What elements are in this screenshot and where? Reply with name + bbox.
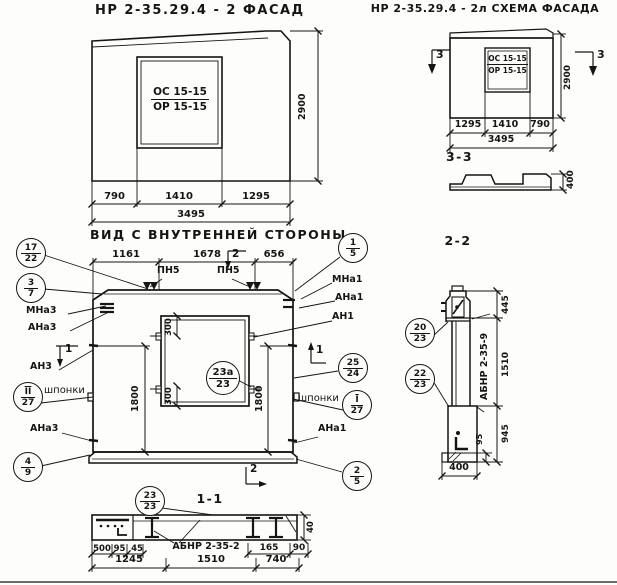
facade-title: НР 2-35.29.4 - 2 ФАСАД: [95, 4, 291, 18]
callout-23-23: 23 23: [135, 486, 165, 516]
section-mark-2-top: 2: [232, 249, 239, 260]
callout-II-27: II 27: [13, 382, 43, 412]
callout-top-number: 1: [346, 238, 360, 249]
inner-view-leaders: [41, 255, 343, 472]
callout-top-number: 23: [140, 491, 161, 502]
section-1-1-title: 1-1: [190, 492, 230, 505]
callout-2-5: 2 5: [342, 461, 372, 491]
callout-bottom-number: 27: [22, 398, 35, 408]
callout-top-number: 20: [410, 323, 431, 334]
callout-4-9: 4 9: [13, 452, 43, 482]
inner-dim-window-offset-top: 300: [164, 316, 174, 338]
facade-dim-right: 1295: [235, 192, 277, 203]
dim-95-lip: 95: [475, 430, 484, 448]
dim-45: 45: [128, 545, 146, 554]
dim-400: 400: [440, 463, 478, 473]
window-mark-bottom: ОР 15-15: [151, 101, 209, 113]
part-label-shponki-left: шпонки: [44, 386, 85, 397]
scheme-window-mark: ОС 15-15 ОР 15-15: [487, 54, 528, 75]
weld-mark-left: ПН5: [157, 266, 180, 276]
window-mark-top: ОС 15-15: [151, 86, 209, 100]
callout-bottom-number: 5: [350, 249, 356, 259]
scheme-title: НР 2-35.29.4 - 2л СХЕМА ФАСАДА: [356, 3, 614, 15]
callout-top-number: 2: [350, 466, 364, 477]
callout-bottom-number: 24: [347, 369, 360, 379]
facade-dim-total: 3495: [170, 210, 212, 221]
dim-90: 90: [287, 544, 311, 553]
beam-mark-2-2: АБНР 2-35-9: [479, 320, 490, 412]
inner-dim-top-right: 656: [257, 250, 291, 261]
facade-dim-left: 790: [96, 192, 133, 203]
part-label-ana3-bottom: АНа3: [30, 424, 58, 434]
callout-I-27: I 27: [342, 390, 372, 420]
dim-95: 95: [111, 545, 128, 554]
scheme-dim-middle: 1410: [489, 120, 521, 130]
callout-bottom-number: 23: [216, 379, 230, 390]
inner-dim-height-left: 1800: [130, 382, 141, 416]
callout-20-23: 20 23: [405, 318, 435, 348]
scheme-section-mark-right: 3: [597, 49, 605, 61]
facade-dim-middle: 1410: [158, 192, 200, 203]
inner-view-title: ВИД С ВНУТРЕННЕЙ СТОРОНЫ: [90, 228, 316, 241]
callout-bottom-number: 27: [351, 406, 364, 416]
scheme-dim-height: 2900: [563, 56, 573, 98]
part-label-ana1-bottom: АНа1: [318, 424, 346, 434]
callout-bottom-number: 23: [414, 334, 427, 344]
callout-top-number: 22: [410, 369, 431, 380]
section-mark-2-bottom: 2: [250, 464, 257, 475]
callout-bottom-number: 9: [25, 468, 31, 478]
part-label-shponki-right: шпонки: [298, 394, 339, 405]
section-2-2-linework: [433, 286, 503, 480]
beam-mark-1-1: АБНР 2-35-2: [163, 542, 249, 552]
dim-165: 165: [254, 544, 284, 553]
part-label-mna1: МНа1: [332, 275, 362, 285]
callout-23a-23: 23а 23: [206, 361, 240, 395]
callout-top-number: 25: [343, 358, 364, 369]
dim-1245: 1245: [105, 555, 153, 566]
inner-dim-height-right: 1800: [254, 382, 265, 416]
callout-top-number: 3: [24, 278, 38, 289]
section-mark-1-right: 1: [316, 345, 323, 356]
window-mark-bottom: ОР 15-15: [487, 66, 528, 75]
dim-945: 945: [501, 418, 511, 450]
inner-dim-top-middle: 1678: [186, 250, 228, 261]
section-3-3-title: 3-3: [432, 150, 487, 163]
callout-bottom-number: 22: [25, 254, 38, 264]
callout-top-number: 23а: [209, 367, 238, 379]
weld-mark-right: ПН5: [217, 266, 240, 276]
section-3-3-linework: [450, 174, 567, 190]
dim-740: 740: [254, 555, 298, 566]
callout-top-number: I: [351, 395, 362, 406]
scheme-dim-left: 1295: [452, 120, 484, 130]
callout-25-24: 25 24: [338, 353, 368, 383]
dim-40: 40: [306, 517, 316, 537]
callout-22-23: 22 23: [405, 364, 435, 394]
callout-top-number: 17: [21, 243, 42, 254]
inner-view-linework: [41, 251, 343, 487]
callout-bottom-number: 23: [414, 380, 427, 390]
dim-1510-bottom: 1510: [187, 555, 235, 566]
callout-top-number: II: [21, 387, 36, 398]
dim-445: 445: [501, 292, 511, 318]
scheme-section-mark-left: 3: [436, 49, 444, 61]
part-label-ana1-top: АНа1: [335, 293, 363, 303]
facade-window-mark: ОС 15-15 ОР 15-15: [151, 86, 209, 113]
section-3-3-dim-thickness: 400: [566, 167, 576, 193]
part-label-ana3-top: АНа3: [28, 323, 56, 333]
drawing-linework: [0, 0, 617, 585]
callout-bottom-number: 23: [144, 502, 157, 512]
callout-top-number: 4: [21, 457, 35, 468]
scheme-dim-total: 3495: [485, 135, 517, 145]
part-label-an1: АН1: [332, 312, 354, 322]
dim-1510-side: 1510: [501, 346, 511, 382]
facade-dim-height: 2900: [297, 84, 308, 130]
inner-dim-top-left: 1161: [105, 250, 147, 261]
callout-3-7: 3 7: [16, 273, 46, 303]
drawing-sheet: НР 2-35.29.4 - 2 ФАСАД ОС 15-15 ОР 15-15…: [0, 0, 617, 585]
callout-17-22: 17 22: [16, 238, 46, 268]
inner-dim-window-offset-bottom: 300: [164, 385, 174, 407]
callout-bottom-number: 5: [354, 477, 360, 487]
scheme-dim-right: 790: [526, 120, 554, 130]
window-mark-top: ОС 15-15: [487, 54, 528, 65]
callout-1-5: 1 5: [338, 233, 368, 263]
part-label-an3: АН3: [30, 362, 52, 372]
part-label-mna3: МНа3: [26, 306, 56, 316]
section-mark-1-left: 1: [65, 344, 72, 355]
section-2-2-title: 2-2: [428, 234, 488, 247]
callout-bottom-number: 7: [28, 289, 34, 299]
